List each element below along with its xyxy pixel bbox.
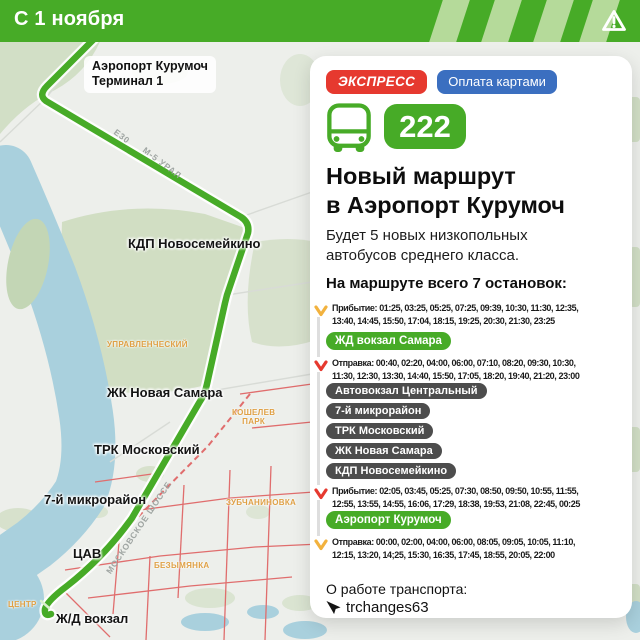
map-label-kdp: КДП Новосемейкино — [128, 236, 261, 251]
terminal-badge-airport: Аэропорт Курумоч — [326, 511, 451, 529]
map-district-koshelev-line2: ПАРК — [232, 417, 275, 426]
header-stripe — [429, 0, 470, 42]
arrival-airport-times: Прибытие: 02:05, 03:45, 05:25, 07:30, 08… — [332, 485, 594, 510]
map-label-cav: ЦАВ — [73, 546, 101, 561]
arrival-samara-row: Прибытие: 01:25, 03:25, 05:25, 07:25, 09… — [314, 302, 594, 327]
departure-airport-times: Отправка: 00:00, 02:00, 04:00, 06:00, 08… — [332, 536, 594, 561]
telegram-icon — [326, 600, 341, 615]
stop-pill: ЖК Новая Самара — [326, 443, 442, 459]
stops-heading: На маршруте всего 7 остановок: — [326, 275, 567, 292]
route-number-badge: 222 — [384, 104, 466, 149]
stop-pill: КДП Новосемейкино — [326, 463, 456, 479]
arrival-airport-row: Прибытие: 02:05, 03:45, 05:25, 07:30, 08… — [314, 485, 594, 510]
header-stripe — [481, 0, 522, 42]
badges-row: ЭКСПРЕСС Оплата картами — [326, 70, 557, 94]
map-label-mkr: 7-й микрорайон — [44, 492, 146, 507]
page-title: Новый маршрут в Аэропорт Курумоч — [326, 162, 565, 220]
map-label-airport-line1: Аэропорт Курумоч — [92, 59, 208, 74]
map-label-zhk: ЖК Новая Самара — [107, 385, 223, 400]
footer-label: О работе транспорта: — [326, 581, 467, 597]
map-label-airport-line2: Терминал 1 — [92, 74, 208, 89]
terminal-badge-samara: ЖД вокзал Самара — [326, 332, 451, 350]
map-district-upravlencheskiy: УПРАВЛЕНЧЕСКИЙ — [107, 340, 188, 349]
stop-pill: Автовокзал Центральный — [326, 383, 487, 399]
stop-pill: ТРК Московский — [326, 423, 433, 439]
telegram-channel-name: trchanges63 — [346, 599, 429, 616]
route-info-card: ЭКСПРЕСС Оплата картами 222 Новый маршру… — [310, 56, 632, 618]
page-title-line2: в Аэропорт Курумоч — [326, 191, 565, 220]
infographic: Аэропорт Курумоч Терминал 1 КДП Новосеме… — [0, 0, 640, 640]
header-banner: С 1 ноября — [0, 0, 640, 42]
departure-airport-row: Отправка: 00:00, 02:00, 04:00, 06:00, 08… — [314, 536, 594, 561]
map-district-koshelev-line1: КОШЕЛЕВ — [232, 408, 275, 417]
header-title: С 1 ноября — [14, 8, 124, 31]
departure-samara-times: Отправка: 00:40, 02:20, 04:00, 06:00, 07… — [332, 357, 594, 382]
map-label-rail: Ж/Д вокзал — [56, 611, 128, 626]
telegram-channel-link[interactable]: trchanges63 — [326, 599, 429, 616]
chevron-down-icon — [314, 536, 332, 551]
card-payment-badge: Оплата картами — [437, 70, 557, 94]
bus-icon — [326, 103, 372, 153]
express-badge: ЭКСПРЕСС — [326, 70, 427, 94]
map-district-centr: ЦЕНТР — [8, 600, 37, 609]
chevron-down-icon — [314, 485, 332, 500]
header-stripe — [533, 0, 574, 42]
departure-samara-row: Отправка: 00:40, 02:20, 04:00, 06:00, 07… — [314, 357, 594, 382]
stop-pill: 7-й микрорайон — [326, 403, 430, 419]
page-title-line1: Новый маршрут — [326, 162, 565, 191]
map-district-koshelev: КОШЕЛЕВ ПАРК — [232, 408, 275, 426]
map-label-trk: ТРК Московский — [94, 442, 200, 457]
map-district-zubchaninovka: ЗУБЧАНИНОВКА — [226, 498, 296, 507]
chevron-down-icon — [314, 302, 332, 317]
route-description: Будет 5 новых низкопольных автобусов сре… — [326, 226, 574, 266]
arrival-samara-times: Прибытие: 01:25, 03:25, 05:25, 07:25, 09… — [332, 302, 594, 327]
chevron-down-icon — [314, 357, 332, 372]
map-label-airport: Аэропорт Курумоч Терминал 1 — [84, 56, 216, 93]
route-identity-row: 222 — [326, 103, 466, 153]
map-district-bezymyanka: БЕЗЫМЯНКА — [154, 561, 209, 570]
warning-triangle-icon — [601, 8, 627, 34]
